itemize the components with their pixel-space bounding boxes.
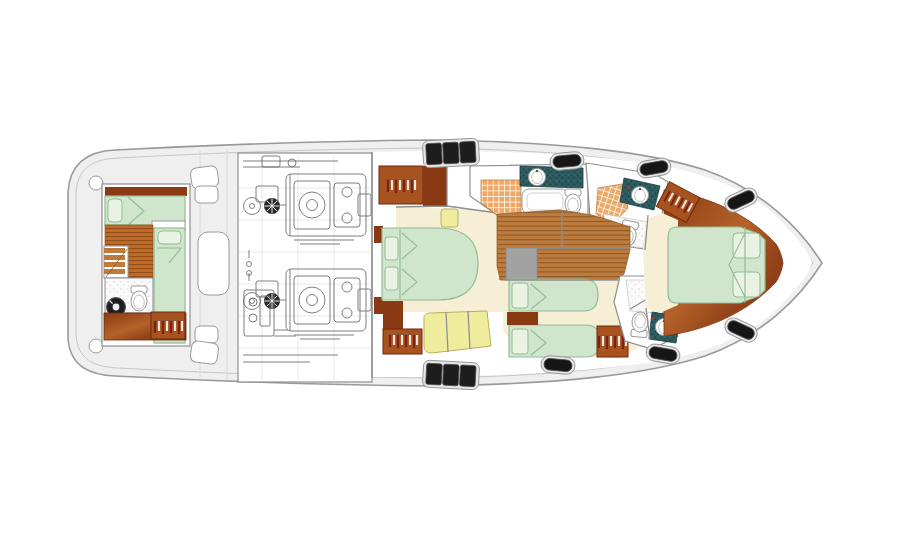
sink-icon	[528, 168, 545, 185]
master-cabinet-aft	[383, 301, 403, 329]
side-window	[540, 355, 575, 375]
master-pillow	[385, 267, 398, 290]
master-pillow	[385, 237, 398, 260]
engine-room	[238, 152, 372, 382]
vip-pillow	[733, 272, 760, 297]
side-window	[549, 151, 584, 171]
deck-hatch-aft-bottom	[422, 360, 479, 390]
crew-cabin	[102, 184, 190, 346]
deck-hatch-aft-top	[422, 138, 479, 168]
crew-bed-pillow	[108, 199, 122, 222]
master-stool	[441, 209, 458, 227]
faucet-dot	[627, 186, 630, 189]
crew-stairs	[104, 246, 128, 278]
crew-toilet-icon	[131, 286, 147, 311]
twin-bed-pillow	[512, 329, 528, 354]
deck-hatch-cover	[198, 232, 229, 295]
master-cabinet-fwd	[423, 166, 447, 207]
twin-bed-pillow	[512, 283, 528, 308]
stern-fitting	[89, 176, 103, 190]
yacht-deck-plan-canvas	[0, 0, 900, 550]
crew-cabinet	[105, 187, 187, 196]
sink-icon	[631, 186, 648, 203]
deck-locker	[195, 186, 218, 203]
stair-landing	[506, 248, 537, 280]
deck-locker	[190, 340, 220, 365]
faucet-dot	[651, 316, 654, 319]
stern-fitting	[89, 339, 103, 353]
yacht-lower-deck-plan	[0, 0, 900, 550]
deck-locker	[195, 326, 218, 343]
master-sofa	[424, 311, 491, 353]
vip-pillow	[733, 233, 760, 258]
corridor	[497, 210, 630, 280]
toilet-icon	[565, 189, 581, 214]
twin-nightstand	[507, 312, 538, 325]
crew-bed-pillow	[158, 231, 181, 244]
